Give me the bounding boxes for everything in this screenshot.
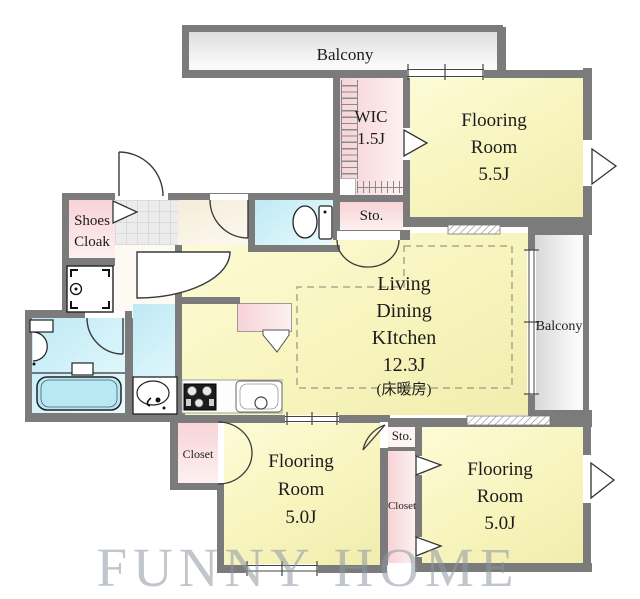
room-label-flooring-55: Flooring Room 5.5J [414,107,574,188]
room-label-flooring-50-right: Flooring Room 5.0J [420,456,580,537]
room-label-line: 5.0J [221,504,381,532]
room-label-line: Dining [324,298,484,325]
room-label-closet-left: Closet [172,446,224,463]
washbasin-icon [133,377,177,414]
watermark: FUNNY HOME [88,536,528,599]
room-label-sto-bottom: Sto. [386,427,418,445]
bathtub-icon [32,363,125,410]
sliding-screen-hatch [467,416,550,425]
sliding-screen-hatch [448,225,500,234]
room-label-closet-mid: Closet [385,499,419,514]
room-label-line: 5.0J [420,510,580,537]
entrance-door-arc [119,152,163,196]
toilet-door-arc [210,200,248,238]
room-label-line: Flooring [420,456,580,483]
opening-arrow [592,149,616,184]
room-label-line: 12.3J [324,352,484,379]
ldk-double-door-arcs [337,240,399,267]
room-label-line: WIC [336,106,406,128]
ldk-door-arc [137,252,230,298]
room-label-line: Living [324,271,484,298]
window-marker [285,412,339,425]
room-label-line: 1.5J [336,128,406,150]
counter-flap-icon [263,330,289,352]
kitchen-sink-icon [236,381,282,412]
stove-icon [184,384,216,410]
room-label-balcony-top: Balcony [280,43,410,67]
bath-counter-icon [30,320,53,366]
room-label-flooring-50-left: Flooring Room 5.0J [221,448,381,532]
room-label-ldk: Living Dining KItchen 12.3J (床暖房) [324,271,484,401]
floor-heating-note: (床暖房) [324,379,484,401]
washer-pan-icon [67,266,113,312]
room-label-sto-top: Sto. [344,206,399,227]
window-marker [407,64,484,80]
toilet-icon [293,206,332,239]
floor-plan: Balcony WIC 1.5J Flooring Room 5.5J Sto.… [0,0,640,599]
bathroom-door-arc [87,318,123,354]
room-label-line: Cloak [66,232,118,253]
room-label-shoes-cloak: Shoes Cloak [66,211,118,253]
room-label-wic: WIC 1.5J [336,106,406,150]
room-label-line: Room [420,483,580,510]
room-label-balcony-right: Balcony [528,317,590,337]
room-label-line: Shoes [66,211,118,232]
sto-door-arc [363,425,385,450]
room-label-line: KItchen [324,325,484,352]
room-label-line: Room [221,476,381,504]
room-label-line: Flooring [414,107,574,134]
room-label-line: Room [414,134,574,161]
room-label-line: 5.5J [414,161,574,188]
room-label-line: Flooring [221,448,381,476]
opening-arrow [591,463,614,498]
